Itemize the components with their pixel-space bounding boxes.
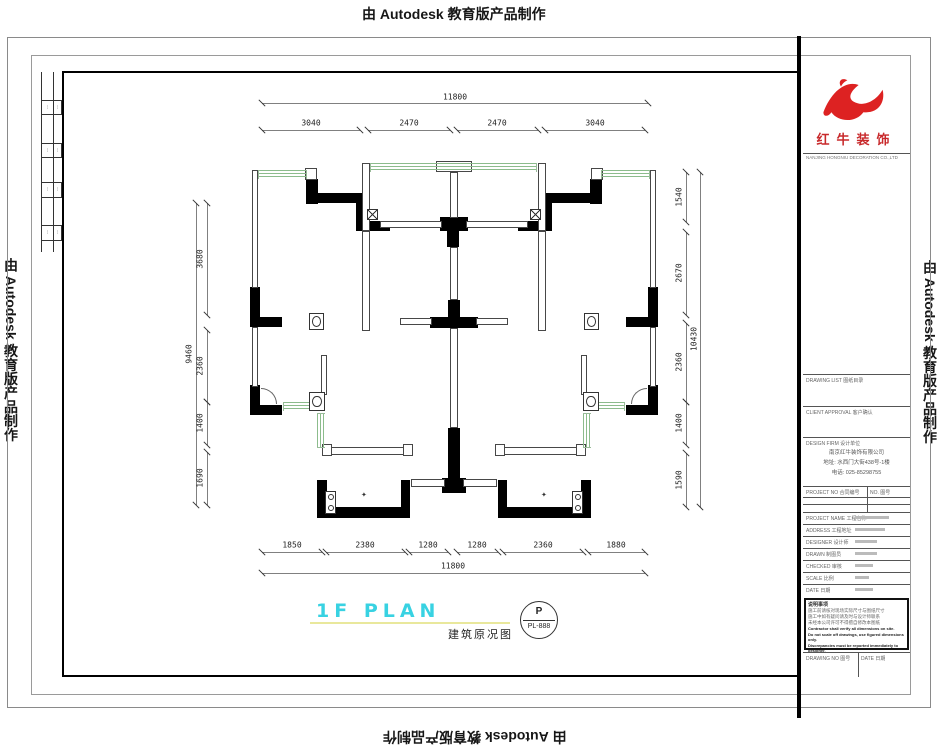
dim-top-seg: 3040 bbox=[301, 119, 320, 128]
dim-left-overall: 9460 bbox=[185, 344, 194, 363]
dim-top-seg: 2470 bbox=[487, 119, 506, 128]
dim-left-seg: 1690 bbox=[196, 468, 205, 487]
row-label: DESIGNER 设计师 bbox=[806, 539, 849, 546]
section-drawing-list: DRAWING LIST 图纸目录 bbox=[806, 377, 863, 384]
dim-bottom-seg: 2380 bbox=[355, 541, 374, 550]
stamp-number: PL-888 bbox=[521, 623, 557, 630]
autodesk-banner-bottom: 由 Autodesk 教育版产品制作 bbox=[383, 727, 567, 747]
footer-drawing-no: DRAWING NO 图号 bbox=[806, 655, 850, 662]
section-client: CLIENT APPROVAL 客户确认 bbox=[806, 409, 873, 416]
section-design-firm: DESIGN FIRM 设计单位 bbox=[806, 440, 860, 447]
stamp-divider bbox=[523, 620, 555, 621]
plan-title: 1F PLAN bbox=[316, 600, 440, 622]
plan-subtitle: 建筑原况图 bbox=[448, 626, 513, 642]
dim-top-seg: 3040 bbox=[585, 119, 604, 128]
row-label: SCALE 比例 bbox=[806, 575, 834, 582]
row-label: DRAWN 制图员 bbox=[806, 551, 841, 558]
dim-bottom-seg: 2360 bbox=[533, 541, 552, 550]
header-no: NO. 图号 bbox=[870, 489, 890, 496]
plan-stamp: P PL-888 bbox=[520, 601, 558, 639]
footer-date: DATE 日期 bbox=[861, 655, 885, 662]
dim-right-seg: 1590 bbox=[675, 470, 684, 489]
brand-caption: NANJING HONGNIU DECORATION CO.,LTD bbox=[806, 155, 908, 160]
dim-right-seg: 2670 bbox=[675, 263, 684, 282]
row-label: CHECKED 审核 bbox=[806, 563, 842, 570]
dim-bottom-seg: 1280 bbox=[467, 541, 486, 550]
dim-top-overall: 11800 bbox=[443, 93, 467, 102]
stamp-letter: P bbox=[521, 606, 557, 617]
company-phone: 电话: 025-85298755 bbox=[803, 469, 910, 478]
dim-bottom-seg: 1880 bbox=[606, 541, 625, 550]
dim-left-seg: 3680 bbox=[196, 249, 205, 268]
dim-right-overall: 10430 bbox=[690, 327, 699, 351]
drawing-frame bbox=[62, 71, 799, 677]
dim-bottom-seg: 1280 bbox=[418, 541, 437, 550]
row-label: ADDRESS 工程地址 bbox=[806, 527, 852, 534]
dim-left-seg: 1400 bbox=[196, 413, 205, 432]
header-project-no: PROJECT NO 合同编号 bbox=[806, 489, 860, 496]
company-name: 南京红牛装饰有限公司 bbox=[803, 449, 910, 458]
brand-logo-icon bbox=[817, 75, 897, 127]
brand-name: 红牛装饰 bbox=[803, 129, 910, 148]
dim-bottom-overall: 11800 bbox=[441, 562, 465, 571]
dim-right-seg: 1400 bbox=[675, 413, 684, 432]
titleblock-divider bbox=[797, 36, 801, 718]
note-line-en: Contractor shall verify all dimensions o… bbox=[808, 626, 905, 632]
note-line-en: Do not scale off drawings, use figured d… bbox=[808, 632, 905, 643]
dim-left-seg: 2360 bbox=[196, 356, 205, 375]
dim-top-seg: 2470 bbox=[399, 119, 418, 128]
dim-right-seg: 2360 bbox=[675, 352, 684, 371]
drawing-sheet: 由 Autodesk 教育版产品制作 由 Autodesk 教育版产品制作 由 … bbox=[0, 0, 938, 750]
dim-bottom-seg: 1850 bbox=[282, 541, 301, 550]
title-block: 红牛装饰 NANJING HONGNIU DECORATION CO.,LTD … bbox=[803, 71, 910, 677]
plan-title-underline bbox=[310, 622, 510, 624]
notes-box: 说明事项 施工前请核对现场实际尺寸与图纸尺寸 施工中如有疑问请及时与设计师联系 … bbox=[804, 598, 909, 650]
row-label: DATE 日期 bbox=[806, 587, 830, 594]
dim-right-seg: 1540 bbox=[675, 187, 684, 206]
autodesk-banner-top: 由 Autodesk 教育版产品制作 bbox=[362, 4, 546, 24]
company-address: 地址: 水西门大街438号-1楼 bbox=[803, 459, 910, 468]
